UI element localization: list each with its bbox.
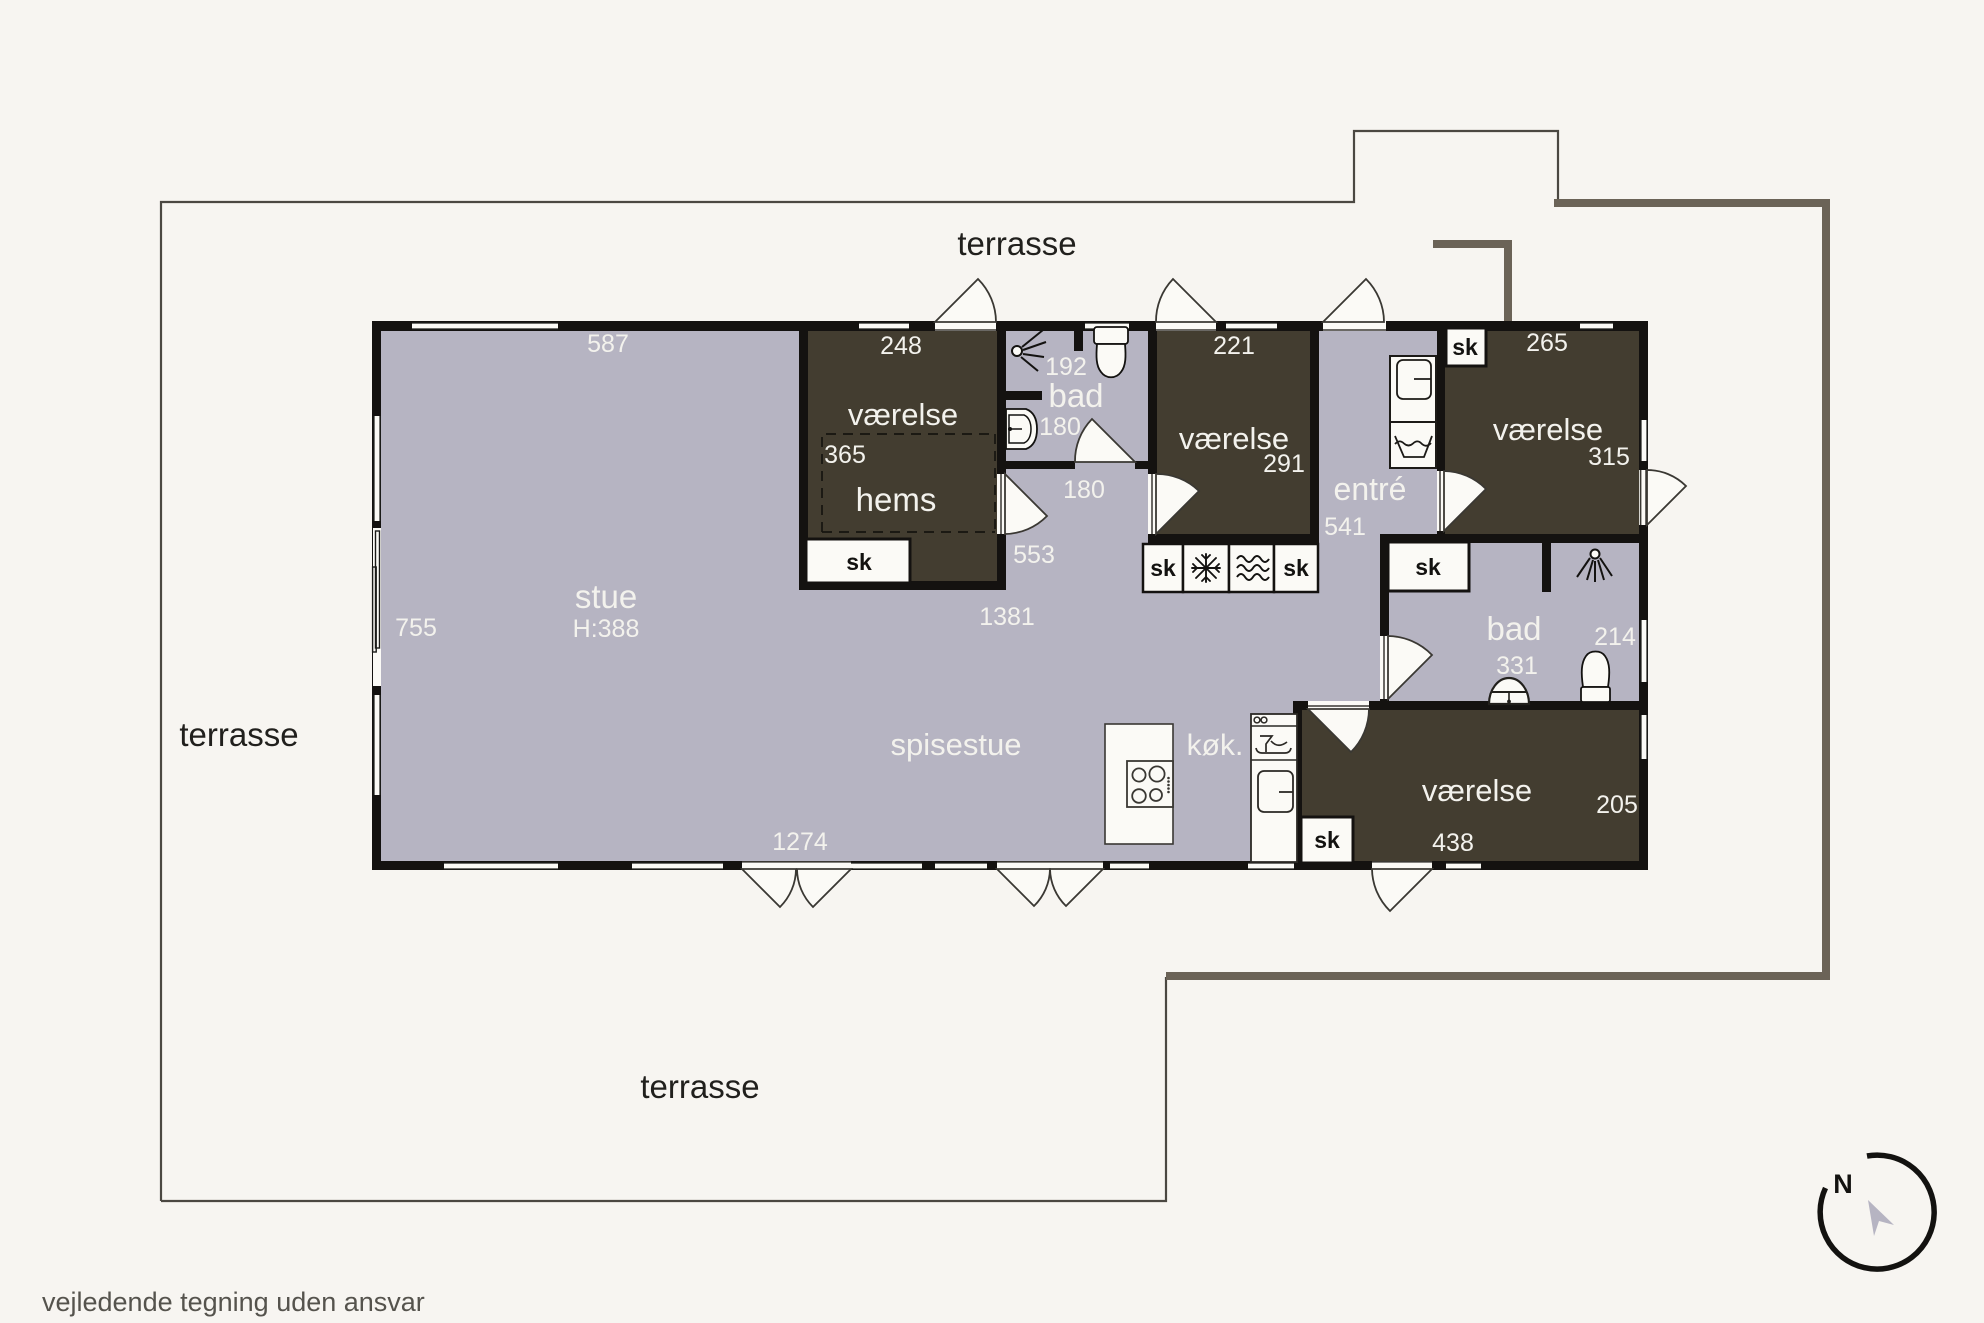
svg-text:N: N bbox=[1833, 1169, 1853, 1199]
svg-text:248: 248 bbox=[880, 332, 922, 360]
svg-text:bad: bad bbox=[1486, 610, 1541, 647]
svg-text:291: 291 bbox=[1263, 450, 1305, 478]
svg-text:180: 180 bbox=[1063, 476, 1105, 504]
svg-text:553: 553 bbox=[1013, 541, 1055, 569]
svg-text:331: 331 bbox=[1496, 652, 1538, 680]
svg-text:stue: stue bbox=[575, 578, 637, 615]
svg-text:terrasse: terrasse bbox=[957, 225, 1076, 262]
svg-text:587: 587 bbox=[587, 330, 629, 358]
svg-text:sk: sk bbox=[1452, 334, 1478, 360]
svg-text:terrasse: terrasse bbox=[640, 1068, 759, 1105]
svg-text:H:388: H:388 bbox=[573, 615, 640, 643]
svg-text:sk: sk bbox=[1150, 555, 1176, 581]
svg-text:221: 221 bbox=[1213, 332, 1255, 360]
svg-text:sk: sk bbox=[846, 549, 872, 575]
svg-text:180: 180 bbox=[1039, 413, 1081, 441]
svg-text:315: 315 bbox=[1588, 443, 1630, 471]
svg-text:214: 214 bbox=[1594, 623, 1636, 651]
svg-text:205: 205 bbox=[1596, 791, 1638, 819]
svg-text:værelse: værelse bbox=[848, 397, 958, 432]
svg-text:bad: bad bbox=[1048, 377, 1103, 414]
svg-text:sk: sk bbox=[1283, 555, 1309, 581]
svg-text:265: 265 bbox=[1526, 329, 1568, 357]
svg-text:entré: entré bbox=[1334, 471, 1407, 507]
svg-text:541: 541 bbox=[1324, 513, 1366, 541]
svg-text:365: 365 bbox=[824, 441, 866, 469]
svg-text:spisestue: spisestue bbox=[891, 727, 1022, 762]
svg-text:sk: sk bbox=[1415, 554, 1441, 580]
svg-text:438: 438 bbox=[1432, 829, 1474, 857]
svg-text:vejledende tegning uden ansvar: vejledende tegning uden ansvar bbox=[42, 1287, 425, 1317]
svg-text:køk.: køk. bbox=[1187, 729, 1244, 762]
svg-text:1274: 1274 bbox=[772, 828, 828, 856]
svg-text:værelse: værelse bbox=[1493, 412, 1603, 447]
svg-text:terrasse: terrasse bbox=[179, 716, 298, 753]
svg-text:755: 755 bbox=[395, 614, 437, 642]
svg-text:hems: hems bbox=[856, 481, 937, 518]
svg-text:værelse: værelse bbox=[1422, 773, 1532, 808]
svg-text:sk: sk bbox=[1314, 827, 1340, 853]
svg-text:1381: 1381 bbox=[979, 603, 1035, 631]
